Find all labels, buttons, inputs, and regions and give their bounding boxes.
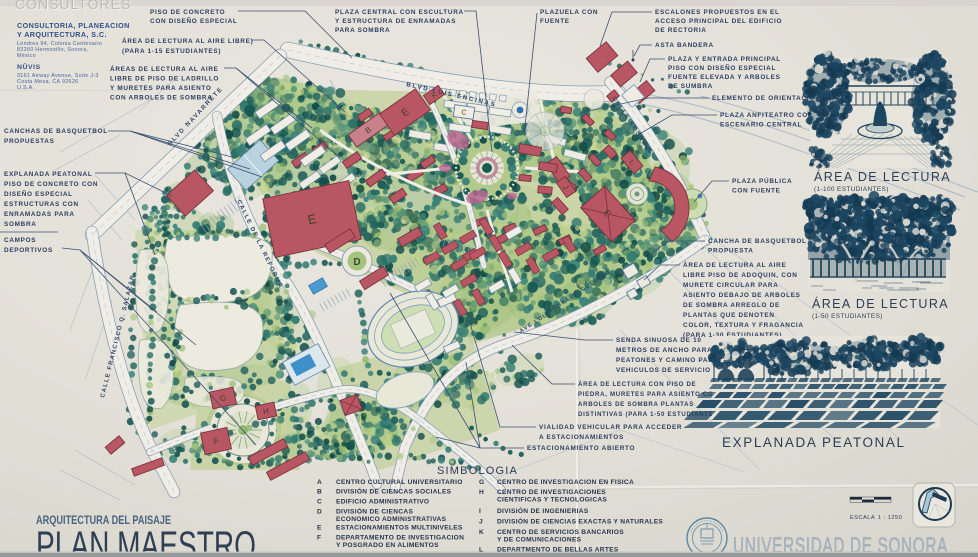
svg-text:MURETE CIRCULAR PARA: MURETE CIRCULAR PARA bbox=[683, 282, 779, 289]
svg-text:METROS DE ANCHO PARA: METROS DE ANCHO PARA bbox=[616, 347, 712, 354]
svg-text:PROPUESTA: PROPUESTA bbox=[708, 248, 754, 255]
svg-text:CANCHA DE BASQUETBOL: CANCHA DE BASQUETBOL bbox=[708, 238, 807, 245]
svg-text:PLAZA CENTRAL CON ESCULTURA: PLAZA CENTRAL CON ESCULTURA bbox=[335, 9, 464, 16]
svg-text:PLANTAS QUE DENOTEN: PLANTAS QUE DENOTEN bbox=[683, 312, 775, 319]
svg-text:ARBOLES DE SOMBRA PLANTAS: ARBOLES DE SOMBRA PLANTAS bbox=[578, 401, 694, 408]
svg-text:PLAZA Y ENTRADA PRINCIPAL: PLAZA Y ENTRADA PRINCIPAL bbox=[668, 56, 781, 63]
svg-text:CONSULTORES: CONSULTORES bbox=[15, 0, 131, 12]
svg-text:CON DISEÑO ESPECIAL: CON DISEÑO ESPECIAL bbox=[150, 16, 238, 25]
svg-text:CONSULTORIA, PLANEACION: CONSULTORIA, PLANEACION bbox=[17, 21, 130, 30]
svg-text:DEPORTIVOS: DEPORTIVOS bbox=[4, 247, 53, 254]
svg-text:VEHICULOS DE SERVICIO: VEHICULOS DE SERVICIO bbox=[616, 367, 711, 374]
svg-text:NŪVIS: NŪVIS bbox=[17, 63, 41, 71]
svg-text:PROPUESTAS: PROPUESTAS bbox=[4, 138, 55, 145]
svg-text:VIALIDAD VEHICULAR PARA ACCEDE: VIALIDAD VEHICULAR PARA ACCEDER bbox=[539, 424, 682, 431]
svg-text:ÁREA DE LECTURA AL AIRE LIBRE): ÁREA DE LECTURA AL AIRE LIBRE) bbox=[122, 36, 253, 45]
svg-text:ÁREAS DE LECTURA AL AIRE: ÁREAS DE LECTURA AL AIRE bbox=[110, 64, 219, 73]
svg-text:PLAZA PÚBLICA: PLAZA PÚBLICA bbox=[732, 176, 792, 185]
svg-text:ESTRUCTURAS CON: ESTRUCTURAS CON bbox=[4, 201, 79, 208]
svg-text:DISEÑO ESPECIAL: DISEÑO ESPECIAL bbox=[4, 189, 73, 198]
svg-text:CANCHAS DE BASQUETBOL: CANCHAS DE BASQUETBOL bbox=[4, 128, 108, 135]
svg-text:U.S.A.: U.S.A. bbox=[17, 85, 34, 91]
svg-text:D: D bbox=[353, 257, 360, 268]
svg-text:PLAZA ANFITEATRO CON: PLAZA ANFITEATRO CON bbox=[720, 112, 813, 119]
svg-text:COLOR, TEXTURA Y FRAGANCIA: COLOR, TEXTURA Y FRAGANCIA bbox=[683, 322, 804, 329]
svg-text:CAMPOS: CAMPOS bbox=[4, 237, 36, 244]
svg-text:ESCALONES PROPUESTOS EN EL: ESCALONES PROPUESTOS EN EL bbox=[655, 9, 780, 16]
svg-text:FUENTE: FUENTE bbox=[540, 18, 570, 25]
svg-text:DE RECTORIA: DE RECTORIA bbox=[655, 27, 707, 34]
svg-text:ÁREA DE LECTURA: ÁREA DE LECTURA bbox=[814, 169, 951, 184]
svg-text:C: C bbox=[461, 109, 467, 117]
svg-text:ÁREA DE LECTURA AL AIRE: ÁREA DE LECTURA AL AIRE bbox=[683, 260, 786, 269]
svg-text:FUENTE ELEVADA Y ARBOLES: FUENTE ELEVADA Y ARBOLES bbox=[668, 74, 781, 81]
svg-text:PEATONES Y CAMINO PARA: PEATONES Y CAMINO PARA bbox=[616, 357, 719, 364]
svg-text:PISO DE CONCRETO CON: PISO DE CONCRETO CON bbox=[4, 181, 98, 188]
svg-text:SENDA SINUOSA DE 10: SENDA SINUOSA DE 10 bbox=[616, 337, 702, 344]
svg-text:ESCENARIO CENTRAL: ESCENARIO CENTRAL bbox=[720, 122, 802, 129]
svg-text:PIEDRA, MURETES PARA ASIENTO C: PIEDRA, MURETES PARA ASIENTO CON bbox=[578, 391, 719, 398]
svg-text:ACCESO PRINCIPAL DEL EDIFICIO: ACCESO PRINCIPAL DEL EDIFICIO bbox=[655, 18, 782, 25]
svg-text:México: México bbox=[17, 53, 36, 59]
svg-text:LIBRE DE PISO DE LADRILLO: LIBRE DE PISO DE LADRILLO bbox=[110, 76, 219, 83]
svg-text:ENRAMADAS PARA: ENRAMADAS PARA bbox=[4, 211, 75, 218]
svg-text:CON FUENTE: CON FUENTE bbox=[732, 188, 781, 195]
svg-text:(PARA 1-15 ESTUDIANTES): (PARA 1-15 ESTUDIANTES) bbox=[122, 48, 221, 55]
svg-text:DE SUMBRA: DE SUMBRA bbox=[668, 83, 713, 90]
svg-text:Y ESTRUCTURA DE ENRAMADAS: Y ESTRUCTURA DE ENRAMADAS bbox=[335, 18, 456, 25]
svg-text:PLAZUELA CON: PLAZUELA CON bbox=[540, 9, 598, 16]
svg-text:ASTA BANDERA: ASTA BANDERA bbox=[655, 42, 714, 49]
svg-text:SOMBRA: SOMBRA bbox=[4, 221, 37, 228]
svg-text:ELEMENTO DE ORIENTACIÓ: ELEMENTO DE ORIENTACIÓ bbox=[712, 93, 815, 102]
svg-text:ESTACIONAMIENTO ABIERTO: ESTACIONAMIENTO ABIERTO bbox=[527, 445, 635, 452]
svg-text:EXPLANADA PEATONAL: EXPLANADA PEATONAL bbox=[4, 171, 92, 178]
svg-text:LIBRE PISO DE ADOQUIN, CON: LIBRE PISO DE ADOQUIN, CON bbox=[683, 272, 798, 279]
svg-text:ASIENTO DEBAJO DE ARBOLES: ASIENTO DEBAJO DE ARBOLES bbox=[683, 292, 801, 299]
svg-text:(1-100 ESTUDIANTES): (1-100 ESTUDIANTES) bbox=[814, 186, 889, 193]
svg-text:A ESTACIONAMIENTOS: A ESTACIONAMIENTOS bbox=[539, 434, 624, 441]
svg-text:PISO DE CONCRETO: PISO DE CONCRETO bbox=[150, 9, 225, 16]
svg-text:DE SOMBRA ARREGLO DE: DE SOMBRA ARREGLO DE bbox=[683, 302, 780, 309]
svg-text:Y ARQUITECTURA, S.C.: Y ARQUITECTURA, S.C. bbox=[17, 30, 107, 39]
svg-text:Y MURETES PARA ASIENTO: Y MURETES PARA ASIENTO bbox=[110, 85, 212, 92]
svg-text:CON ARBOLES DE SOMBRA: CON ARBOLES DE SOMBRA bbox=[110, 95, 213, 102]
svg-text:PARA SOMBRA: PARA SOMBRA bbox=[335, 27, 390, 34]
svg-text:PISO CON DISEÑO ESPECIAL: PISO CON DISEÑO ESPECIAL bbox=[668, 63, 776, 72]
svg-text:ÁREA DE LECTURA CON PISO DE: ÁREA DE LECTURA CON PISO DE bbox=[578, 381, 696, 388]
